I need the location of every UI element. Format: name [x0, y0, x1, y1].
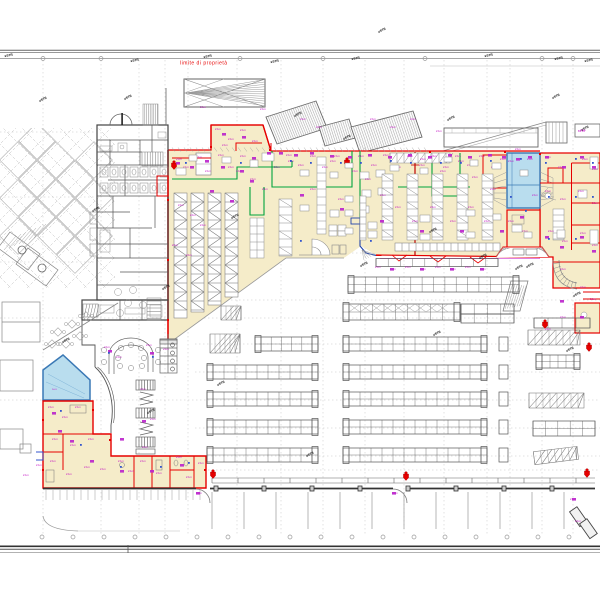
- svg-text:2.1m: 2.1m: [186, 475, 192, 479]
- svg-text:2.1m: 2.1m: [205, 169, 211, 173]
- svg-text:2.1m: 2.1m: [172, 243, 178, 247]
- svg-text:2.1m: 2.1m: [178, 203, 184, 207]
- svg-text:2.1m: 2.1m: [163, 347, 169, 351]
- svg-text:2.1m: 2.1m: [23, 473, 29, 477]
- svg-text:2.1m: 2.1m: [176, 157, 182, 161]
- svg-text:2.1m: 2.1m: [358, 154, 364, 158]
- svg-text:2.1m: 2.1m: [140, 387, 146, 391]
- svg-text:2.1m: 2.1m: [334, 154, 340, 158]
- svg-text:2.1m: 2.1m: [84, 465, 90, 469]
- svg-text:2.1m: 2.1m: [405, 265, 411, 269]
- svg-text:2.1m: 2.1m: [472, 175, 478, 179]
- svg-text:2.1m: 2.1m: [580, 285, 586, 289]
- svg-text:2.1m: 2.1m: [412, 219, 418, 223]
- svg-text:2.1m: 2.1m: [228, 165, 234, 169]
- svg-text:2.1m: 2.1m: [575, 519, 581, 523]
- svg-text:2.1m: 2.1m: [548, 229, 554, 233]
- svg-text:2.1m: 2.1m: [260, 107, 266, 111]
- svg-text:2.1m: 2.1m: [580, 128, 586, 132]
- svg-text:2.1m: 2.1m: [240, 154, 246, 158]
- svg-text:2.1m: 2.1m: [515, 147, 521, 151]
- svg-text:2.1m: 2.1m: [440, 169, 446, 173]
- svg-text:2.1m: 2.1m: [262, 187, 268, 191]
- svg-text:2.1m: 2.1m: [252, 139, 258, 143]
- svg-text:2.1m: 2.1m: [104, 345, 110, 349]
- svg-text:2.1m: 2.1m: [578, 189, 584, 193]
- svg-text:2.1m: 2.1m: [286, 153, 292, 157]
- svg-text:2.1m: 2.1m: [118, 459, 124, 463]
- svg-text:t.e.v.: t.e.v.: [52, 388, 57, 391]
- svg-text:2.1m: 2.1m: [419, 163, 425, 167]
- svg-text:2.1m: 2.1m: [36, 463, 42, 467]
- svg-text:limite di proprietà: limite di proprietà: [180, 61, 228, 67]
- svg-text:2.1m: 2.1m: [200, 223, 206, 227]
- svg-text:2.1m: 2.1m: [330, 159, 336, 163]
- svg-text:2.1m: 2.1m: [50, 459, 56, 463]
- svg-text:2.1m: 2.1m: [310, 187, 316, 191]
- svg-text:2.1m: 2.1m: [580, 231, 586, 235]
- svg-text:2.1m: 2.1m: [156, 471, 162, 475]
- svg-text:2.1m: 2.1m: [410, 117, 416, 121]
- svg-text:2.1m: 2.1m: [545, 189, 551, 193]
- svg-text:2.1m: 2.1m: [508, 159, 514, 163]
- svg-text:2.1m: 2.1m: [316, 125, 322, 129]
- svg-text:2.1m: 2.1m: [200, 105, 206, 109]
- svg-text:2.1m: 2.1m: [300, 117, 306, 121]
- svg-text:2.1m: 2.1m: [100, 467, 106, 471]
- svg-text:2.1m: 2.1m: [176, 455, 182, 459]
- svg-text:2.1m: 2.1m: [532, 193, 538, 197]
- svg-text:2.1m: 2.1m: [75, 405, 81, 409]
- svg-text:2.1m: 2.1m: [395, 205, 401, 209]
- svg-text:2.1m: 2.1m: [479, 154, 485, 158]
- svg-text:2.1m: 2.1m: [465, 265, 471, 269]
- svg-text:2.1m: 2.1m: [435, 265, 441, 269]
- svg-text:2.1m: 2.1m: [222, 143, 228, 147]
- svg-text:2.1m: 2.1m: [150, 417, 156, 421]
- svg-text:2.1m: 2.1m: [218, 153, 224, 157]
- svg-text:2.1m: 2.1m: [365, 177, 371, 181]
- svg-text:2.1m: 2.1m: [52, 437, 58, 441]
- svg-text:2.1m: 2.1m: [380, 193, 386, 197]
- svg-text:2.1m: 2.1m: [455, 154, 461, 158]
- svg-text:2.1m: 2.1m: [545, 327, 551, 331]
- svg-text:2.1m: 2.1m: [592, 201, 598, 205]
- svg-text:2.1m: 2.1m: [443, 165, 449, 169]
- svg-text:2.1m: 2.1m: [436, 129, 442, 133]
- svg-text:2.1m: 2.1m: [450, 219, 456, 223]
- svg-text:2.1m: 2.1m: [484, 219, 490, 223]
- svg-text:2.1m: 2.1m: [88, 437, 94, 441]
- svg-text:2.1m: 2.1m: [186, 253, 192, 257]
- svg-text:2.1m: 2.1m: [562, 239, 568, 243]
- svg-text:2.1m: 2.1m: [560, 197, 566, 201]
- svg-text:2.1m: 2.1m: [338, 197, 344, 201]
- svg-text:2.1m: 2.1m: [48, 405, 54, 409]
- svg-text:2.1m: 2.1m: [430, 205, 436, 209]
- svg-text:2.1m: 2.1m: [228, 137, 234, 141]
- svg-text:2.1m: 2.1m: [490, 187, 496, 191]
- svg-text:2.1m: 2.1m: [70, 443, 76, 447]
- svg-text:2.1m: 2.1m: [142, 445, 148, 449]
- svg-text:2.1m: 2.1m: [592, 243, 598, 247]
- svg-text:2.1m: 2.1m: [274, 165, 280, 169]
- svg-text:2.1m: 2.1m: [420, 157, 426, 161]
- svg-text:2.1m: 2.1m: [383, 153, 389, 157]
- svg-text:2.1m: 2.1m: [298, 163, 304, 167]
- svg-text:2.1m: 2.1m: [560, 267, 566, 271]
- svg-text:2.1m: 2.1m: [370, 117, 376, 121]
- svg-text:2.1m: 2.1m: [146, 343, 152, 347]
- svg-text:2.1m: 2.1m: [66, 472, 72, 476]
- svg-text:2.1m: 2.1m: [240, 128, 246, 132]
- svg-text:2.1m: 2.1m: [215, 127, 221, 131]
- svg-text:2.1m: 2.1m: [128, 469, 134, 473]
- svg-text:2.1m: 2.1m: [198, 461, 204, 465]
- svg-text:2.1m: 2.1m: [116, 355, 122, 359]
- svg-text:2.1m: 2.1m: [322, 165, 328, 169]
- svg-text:2.1m: 2.1m: [468, 205, 474, 209]
- svg-text:2.1m: 2.1m: [508, 219, 514, 223]
- svg-text:2.1m: 2.1m: [375, 265, 381, 269]
- svg-text:2.1m: 2.1m: [371, 163, 377, 167]
- svg-text:2.1m: 2.1m: [390, 125, 396, 129]
- svg-text:2.1m: 2.1m: [560, 315, 566, 319]
- svg-text:2.1m: 2.1m: [590, 297, 596, 301]
- svg-text:2.1m: 2.1m: [190, 213, 196, 217]
- svg-text:2.1m: 2.1m: [140, 459, 146, 463]
- svg-text:2.1m: 2.1m: [352, 169, 358, 173]
- svg-text:2.1m: 2.1m: [62, 415, 68, 419]
